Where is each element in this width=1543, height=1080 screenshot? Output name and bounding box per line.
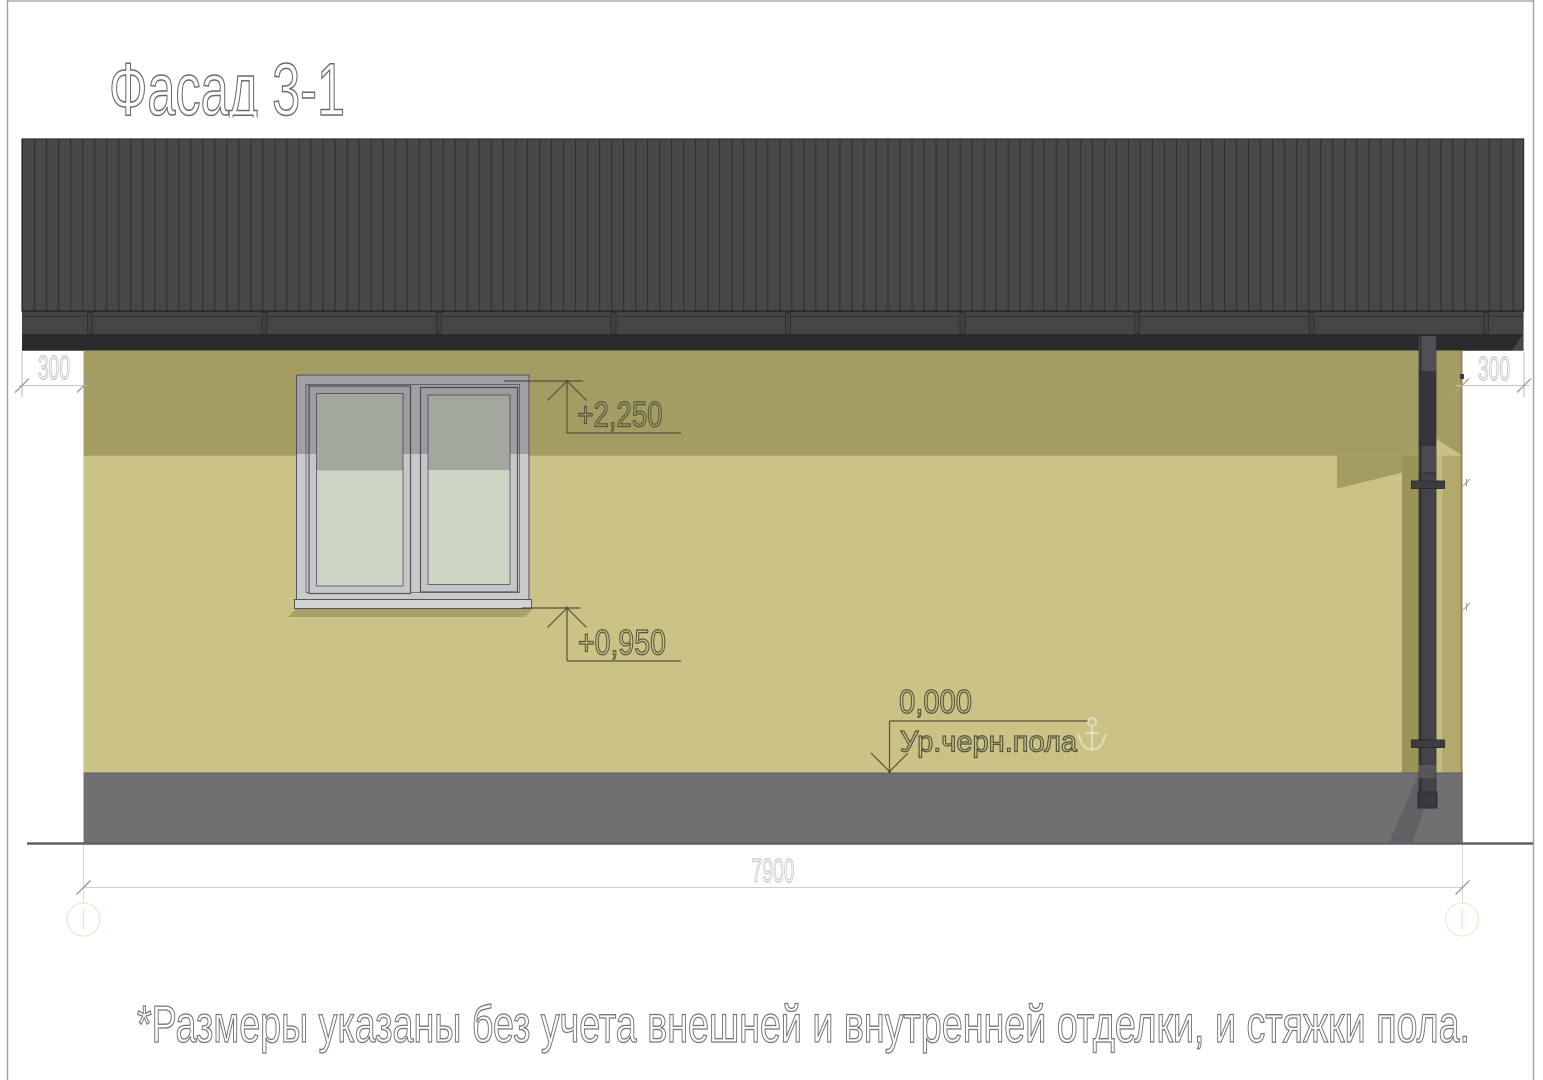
svg-text:+0,950: +0,950 (578, 624, 666, 663)
svg-text:7900: 7900 (752, 852, 795, 889)
svg-text:0,000: 0,000 (899, 683, 972, 720)
svg-text:300: 300 (1478, 350, 1510, 387)
svg-text:300: 300 (38, 349, 70, 386)
svg-text:+2,250: +2,250 (578, 396, 663, 435)
svg-text:*Размеры указаны без учета вне: *Размеры указаны без учета внешней и вну… (137, 996, 1470, 1054)
svg-text:Ур.черн.пола: Ур.черн.пола (900, 726, 1077, 759)
